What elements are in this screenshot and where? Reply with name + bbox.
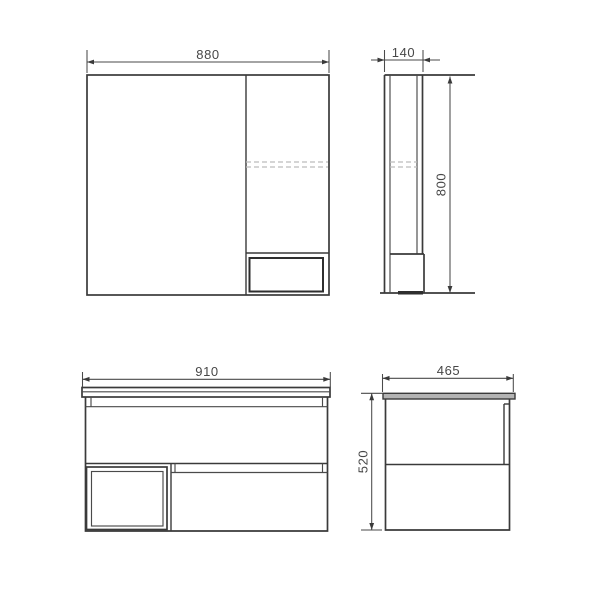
arrowhead-top (448, 77, 453, 84)
arrowhead-right (323, 377, 330, 382)
dimension-vanity-height: 520 (356, 393, 384, 530)
drawing-canvas: 880 140 800 (0, 0, 600, 600)
countertop-side-slab (383, 393, 515, 399)
dimension-vanity-width: 910 (83, 364, 331, 387)
dimension-mirror-width: 880 (87, 47, 329, 73)
mirror-cabinet-front-view: 880 (87, 47, 329, 295)
dim-label-vanity-width: 910 (195, 364, 219, 379)
arrowhead-right-outside (423, 58, 430, 63)
dim-label-vanity-depth: 465 (437, 363, 461, 378)
arrowhead-top (369, 393, 374, 400)
dim-label-mirror-depth: 140 (392, 45, 416, 60)
open-shelf-niche-box (250, 258, 324, 292)
arrowhead-left (87, 60, 94, 65)
arrowhead-right (322, 60, 329, 65)
vanity-cabinet-side-view: 465 520 (356, 363, 516, 530)
door-inner-frame (92, 472, 164, 527)
vanity-cabinet-front-view: 910 (82, 364, 330, 531)
arrowhead-left (383, 376, 390, 381)
mirror-front-outline (87, 75, 329, 295)
arrowhead-left (83, 377, 90, 382)
arrowhead-left-outside (378, 58, 385, 63)
dim-label-vanity-height: 520 (356, 450, 371, 474)
dim-label-mirror-height: 800 (434, 173, 449, 197)
dimension-mirror-depth: 140 (371, 45, 440, 72)
door-outer-frame (87, 467, 168, 530)
dimension-vanity-depth: 465 (383, 363, 514, 392)
arrowhead-right (506, 376, 513, 381)
arrowhead-bottom (448, 286, 453, 293)
dimension-mirror-height: 800 (434, 77, 453, 294)
mirror-cabinet-side-view: 140 800 (371, 45, 475, 295)
arrowhead-bottom (369, 523, 374, 530)
dim-label-mirror-width: 880 (196, 47, 220, 62)
side-bottom-trim-strip (398, 291, 423, 295)
